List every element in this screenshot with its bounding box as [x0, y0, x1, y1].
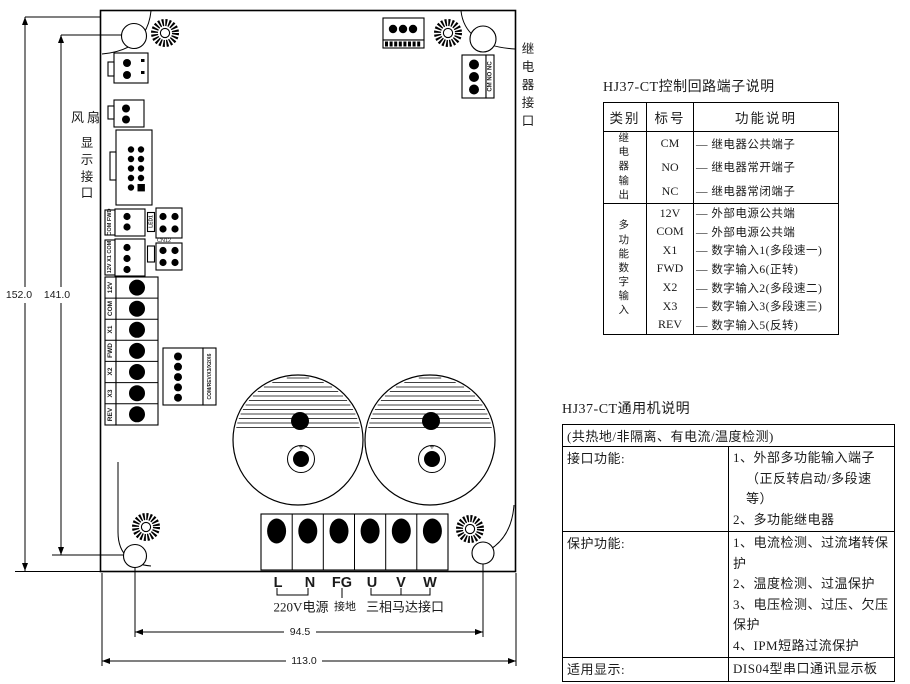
terminal-table-header-row: 类别 标号 功能说明 — [604, 103, 839, 132]
spec-line: 1、电流检测、过流堵转保护 — [733, 533, 890, 574]
terminal-table-title: HJ37-CT控制回路端子说明 — [603, 76, 839, 96]
terminal-FG: FG — [332, 575, 352, 591]
hole-bottom-left — [124, 545, 147, 568]
spec-line: 4、IPM短路过流保护 — [733, 636, 890, 657]
pin-cell: X2 — [647, 278, 694, 297]
table-row: 保护功能: 1、电流检测、过流堵转保护 2、温度检测、过温保护 3、电压检测、过… — [563, 532, 895, 658]
strip-label-rev: REV — [106, 405, 115, 424]
hole-bottom-right — [472, 542, 494, 564]
table-row: 接口功能: 1、外部多功能输入端子 （正反转启动/多段速等） 2、多功能继电器 — [563, 447, 895, 532]
relay-port-label: 继电器接口 — [521, 40, 535, 130]
ground-label: 接地 — [334, 598, 356, 614]
led1-label: LED1 — [148, 212, 155, 232]
hole-top-left — [122, 24, 147, 49]
hole-top-right — [470, 26, 496, 52]
desc-cell: — 外部电源公共端 — [694, 222, 839, 241]
spec-interface-cell: 1、外部多功能输入端子 （正反转启动/多段速等） 2、多功能继电器 — [729, 447, 895, 532]
fan-connector — [108, 53, 148, 83]
desc-cell: — 继电器常开端子 — [694, 156, 839, 180]
table-row: 多功能数字输入 12V — 外部电源公共端 — [604, 203, 839, 222]
spec-note: (共热地/非隔离、有电流/温度检测) — [563, 425, 895, 447]
spec-protection-cell: 1、电流检测、过流堵转保护 2、温度检测、过温保护 3、电压检测、过压、欠压保护… — [729, 532, 895, 658]
desc-cell: — 继电器常闭端子 — [694, 179, 839, 203]
strip-label-x1: X1 — [106, 320, 115, 339]
pin-cell: X1 — [647, 241, 694, 260]
strip-label-12v: 12V — [106, 278, 115, 297]
dim-inner-height: 141.0 — [41, 289, 73, 301]
desc-cell: — 外部电源公共端 — [694, 203, 839, 222]
spec-label-display: 适用显示: — [563, 658, 729, 682]
strip-label-x3: X3 — [106, 384, 115, 403]
col-header-desc: 功能说明 — [694, 103, 839, 132]
dim-outer-width: 113.0 — [288, 655, 320, 667]
relay-pins-label: CM NO NC — [486, 56, 495, 98]
fan-label: 风扇 — [71, 107, 103, 126]
desc-cell: — 继电器公共端子 — [694, 132, 839, 156]
power-label: 220V电源 — [274, 597, 329, 616]
spec-label-interface: 接口功能: — [563, 447, 729, 532]
com-fwd-strip-label: COM FWD — [106, 210, 114, 234]
category-digital-input: 多功能数字输入 — [604, 203, 647, 334]
col-header-category: 类别 — [604, 103, 647, 132]
top-connector — [383, 18, 424, 48]
strip-label-fwd: FWD — [106, 341, 115, 360]
pin-cell: NC — [647, 179, 694, 203]
terminal-table-section: HJ37-CT控制回路端子说明 类别 标号 功能说明 继电器输出 CM — 继电… — [603, 76, 839, 335]
small-component — [148, 246, 155, 262]
v12-x1-com-strip-label: 12V X1 COM — [106, 240, 114, 274]
strip-label-com: COM — [106, 299, 115, 318]
five-pin-strip-label: COM/REV/X3/X2/X6 — [205, 349, 214, 404]
spec-table-title: HJ37-CT通用机说明 — [562, 398, 895, 418]
desc-cell: — 数字输入5(反转) — [694, 315, 839, 334]
pin-cell: NO — [647, 156, 694, 180]
pcb-drawing-page: 风扇 显示接口 继电器接口 152.0 141.0 94.5 113.0 L N… — [0, 0, 910, 684]
dim-outer-height: 152.0 — [3, 289, 35, 301]
desc-cell: — 数字输入6(正转) — [694, 260, 839, 279]
spec-table-section: HJ37-CT通用机说明 (共热地/非隔离、有电流/温度检测) 接口功能: 1、… — [562, 398, 895, 682]
spec-line: 2、温度检测、过温保护 — [733, 574, 890, 595]
spec-line: 3、电压检测、过压、欠压保护 — [733, 595, 890, 636]
terminal-W: W — [423, 575, 437, 591]
spec-line: （正反转启动/多段速等） — [733, 469, 890, 510]
header-2x2-cn12 — [156, 243, 182, 270]
table-row: (共热地/非隔离、有电流/温度检测) — [563, 425, 895, 447]
desc-cell: — 数字输入2(多段速二) — [694, 278, 839, 297]
display-port-label: 显示接口 — [80, 135, 94, 202]
spec-line: 2、多功能继电器 — [733, 510, 890, 531]
display-connector — [110, 130, 152, 205]
cap-left-plus: + — [299, 443, 304, 452]
cn12-label: CN12 — [157, 238, 171, 244]
terminal-N: N — [305, 575, 315, 591]
spec-table: (共热地/非隔离、有电流/温度检测) 接口功能: 1、外部多功能输入端子 （正反… — [562, 424, 895, 682]
terminal-U: U — [367, 575, 377, 591]
pin-cell: FWD — [647, 260, 694, 279]
dim-hole-span: 94.5 — [287, 626, 313, 638]
spec-line: DIS04型串口通讯显示板 — [733, 659, 890, 680]
board-outline — [101, 11, 516, 572]
spec-display-cell: DIS04型串口通讯显示板 — [729, 658, 895, 682]
header-2x2-a — [156, 208, 182, 238]
category-relay-output: 继电器输出 — [604, 132, 647, 204]
spec-label-protection: 保护功能: — [563, 532, 729, 658]
table-row: 继电器输出 CM — 继电器公共端子 — [604, 132, 839, 156]
power-terminal-block — [261, 514, 448, 570]
cap-right-plus: + — [430, 443, 435, 452]
desc-cell: — 数字输入3(多段速三) — [694, 297, 839, 316]
pin-cell: CM — [647, 132, 694, 156]
terminal-L: L — [274, 575, 283, 591]
table-row: 适用显示: DIS04型串口通讯显示板 — [563, 658, 895, 682]
terminal-table: 类别 标号 功能说明 继电器输出 CM — 继电器公共端子 NO — 继电器常开… — [603, 102, 839, 335]
motor-label: 三相马达接口 — [366, 597, 444, 616]
strip-label-x2: X2 — [106, 362, 115, 381]
pin-cell: 12V — [647, 203, 694, 222]
pin-cell: X3 — [647, 297, 694, 316]
col-header-pin: 标号 — [647, 103, 694, 132]
pin-cell: REV — [647, 315, 694, 334]
terminal-V: V — [396, 575, 406, 591]
desc-cell: — 数字输入1(多段速一) — [694, 241, 839, 260]
pin-cell: COM — [647, 222, 694, 241]
spec-line: 1、外部多功能输入端子 — [733, 448, 890, 469]
